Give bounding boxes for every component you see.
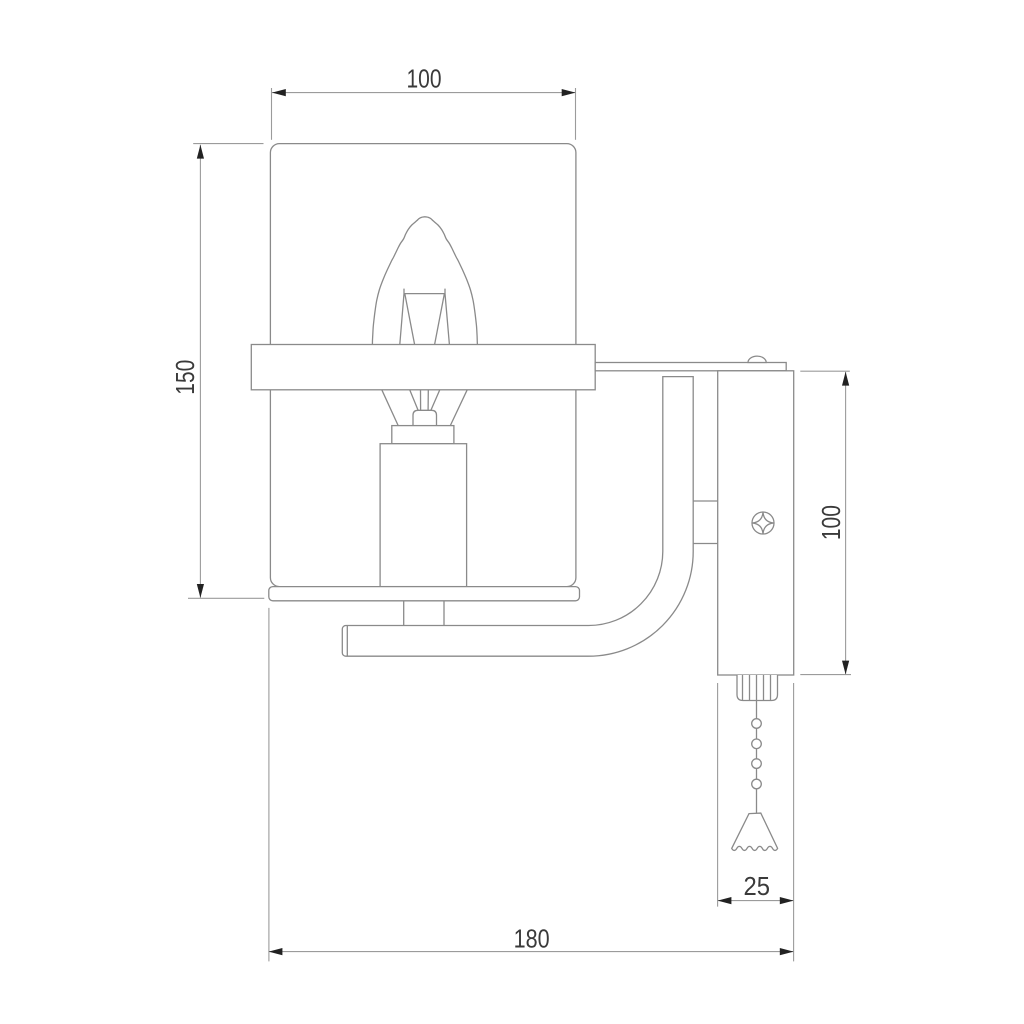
svg-text:100: 100	[818, 505, 846, 540]
svg-text:180: 180	[514, 925, 550, 953]
svg-text:100: 100	[407, 65, 442, 93]
svg-text:25: 25	[744, 873, 771, 901]
svg-text:150: 150	[172, 360, 200, 395]
